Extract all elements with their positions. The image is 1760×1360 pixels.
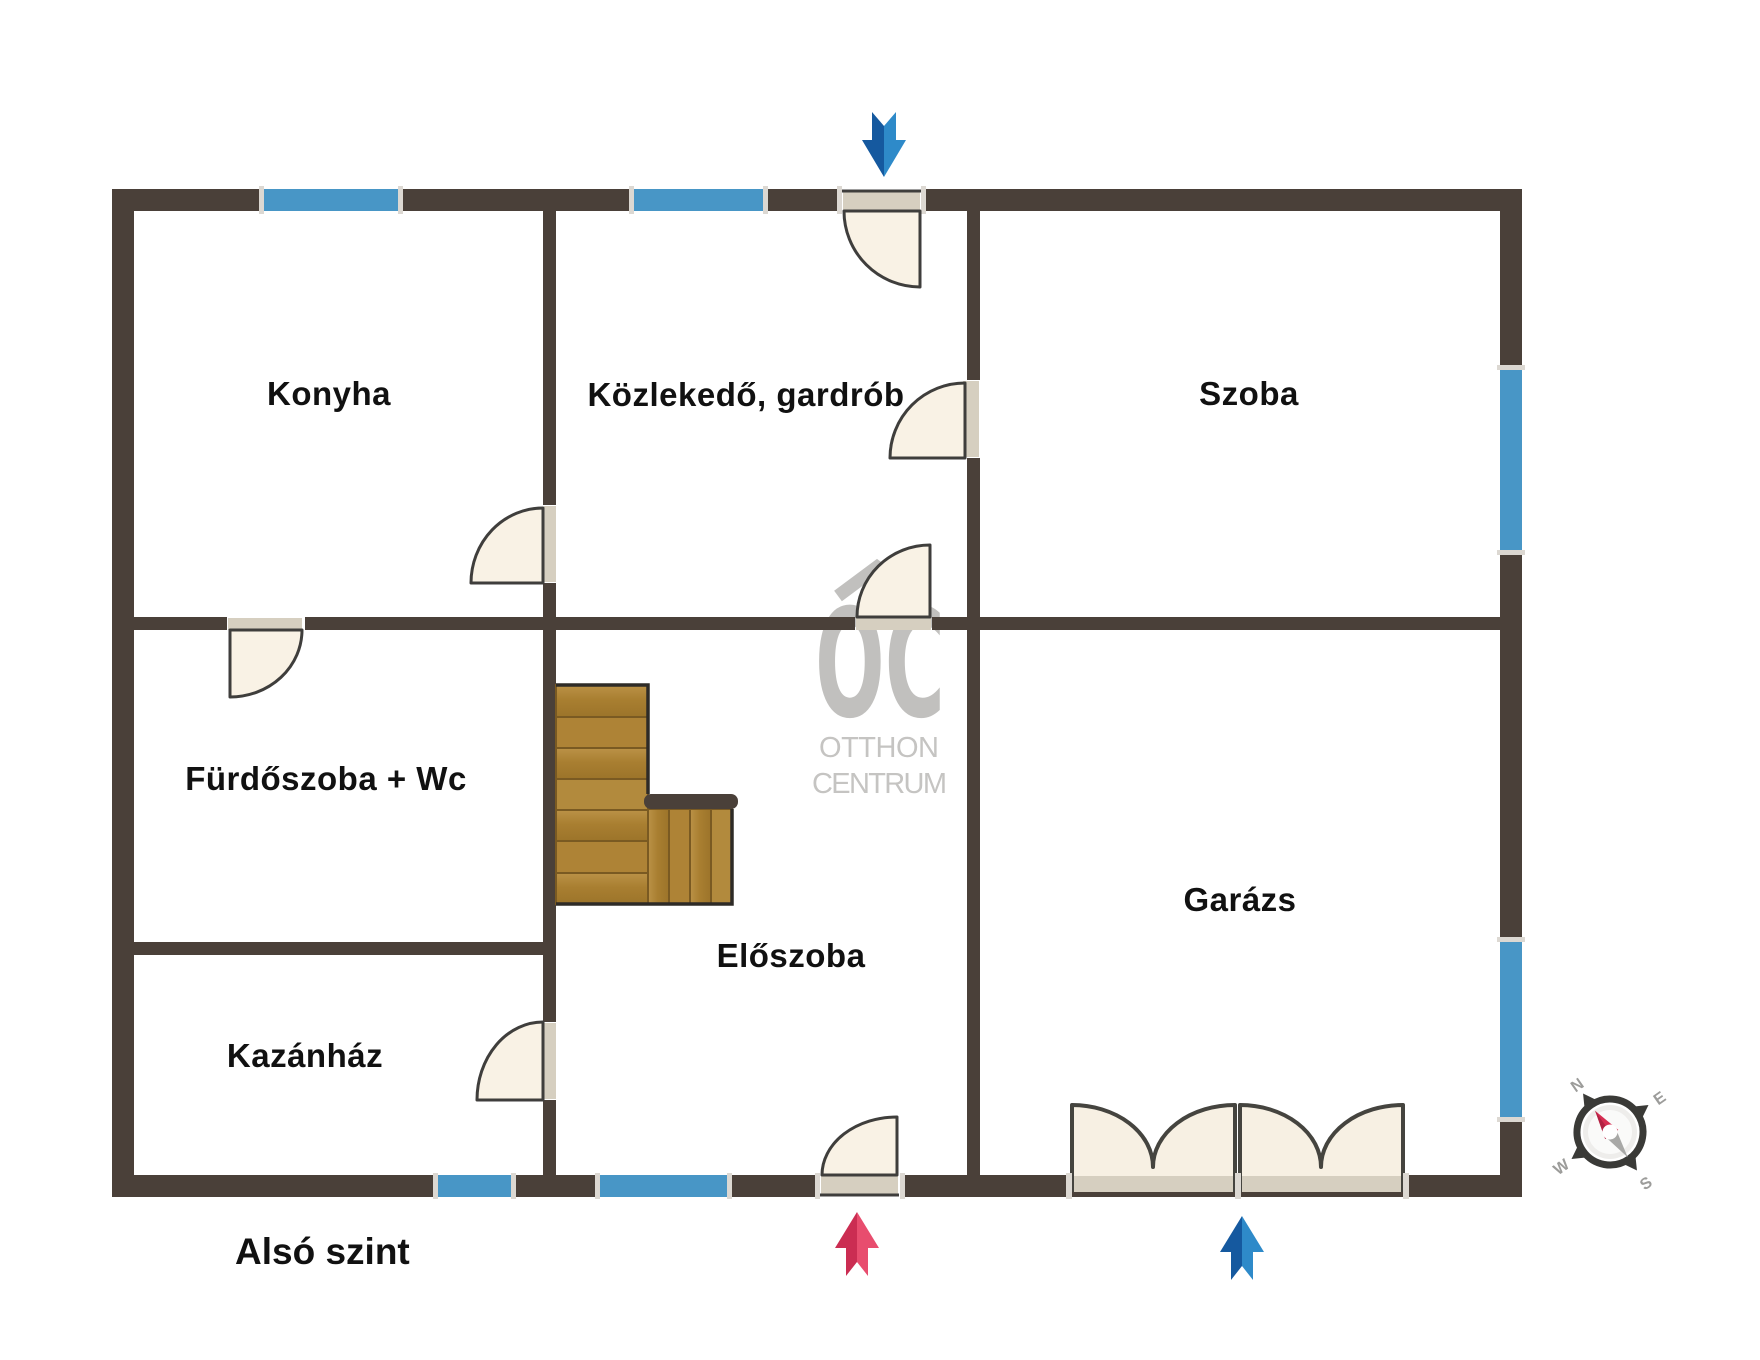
room-label-boiler-room: Kazánház <box>227 1037 383 1075</box>
floor-level-label: Alsó szint <box>235 1231 410 1273</box>
garage-arrow-bottom-blue <box>1220 1216 1264 1280</box>
compass-label-w: W <box>1551 1156 1574 1179</box>
wall-bathroom-boiler <box>134 942 543 955</box>
wall-mid-h-3 <box>932 617 1500 630</box>
room-label-bathroom-wc: Fürdőszoba + Wc <box>185 760 467 798</box>
room-label-hallway-wardrobe: Közlekedő, gardrób <box>587 376 904 414</box>
door-boiler-room <box>477 1022 556 1100</box>
wall-v1-top <box>543 211 556 505</box>
floor-plan-drawing: OC OTTHON CENTRUM <box>0 0 1760 1360</box>
wall-v1-mid <box>543 583 556 1022</box>
window-top-kitchen <box>264 189 398 211</box>
floor-plan-page: OC OTTHON CENTRUM <box>0 0 1760 1360</box>
door-top-entrance <box>842 190 921 287</box>
wall-mid-h-1 <box>134 617 227 630</box>
stairs-handrail <box>644 794 738 809</box>
entrance-arrow-top <box>862 112 906 177</box>
watermark-line1: OTTHON <box>819 732 941 764</box>
compass-label-s: S <box>1637 1174 1656 1194</box>
window-bottom-boiler <box>438 1175 511 1197</box>
compass-rose: N E S W <box>1517 1041 1705 1230</box>
door-bottom-entrance <box>820 1117 899 1195</box>
wall-v1-bottom <box>543 1100 556 1175</box>
stairs-lower-flight <box>648 809 732 904</box>
window-top-hallway <box>634 189 763 211</box>
compass-label-e: E <box>1651 1089 1670 1109</box>
wall-left <box>112 189 134 1197</box>
watermark-line2: CENTRUM <box>812 768 948 800</box>
window-right-garage <box>1500 942 1522 1117</box>
room-label-room: Szoba <box>1199 375 1299 413</box>
stairs <box>556 685 738 904</box>
wall-v2-top <box>967 211 980 380</box>
wall-top-right-of-door <box>922 189 1522 211</box>
garage-doors <box>1066 1105 1409 1199</box>
door-hallway-hall <box>856 545 931 630</box>
room-label-entrance-hall: Előszoba <box>717 937 866 975</box>
door-kitchen <box>471 506 556 583</box>
window-bottom-hall <box>600 1175 727 1197</box>
stairs-vertical-flight <box>556 685 648 904</box>
entrance-arrow-bottom-red <box>835 1212 879 1276</box>
wall-mid-h-2 <box>305 617 855 630</box>
window-right-room <box>1500 370 1522 550</box>
compass-label-n: N <box>1568 1075 1587 1096</box>
room-label-kitchen: Konyha <box>267 375 391 413</box>
wall-v2-bottom <box>967 458 980 1175</box>
door-bathroom <box>228 618 302 697</box>
room-label-garage: Garázs <box>1183 881 1296 919</box>
